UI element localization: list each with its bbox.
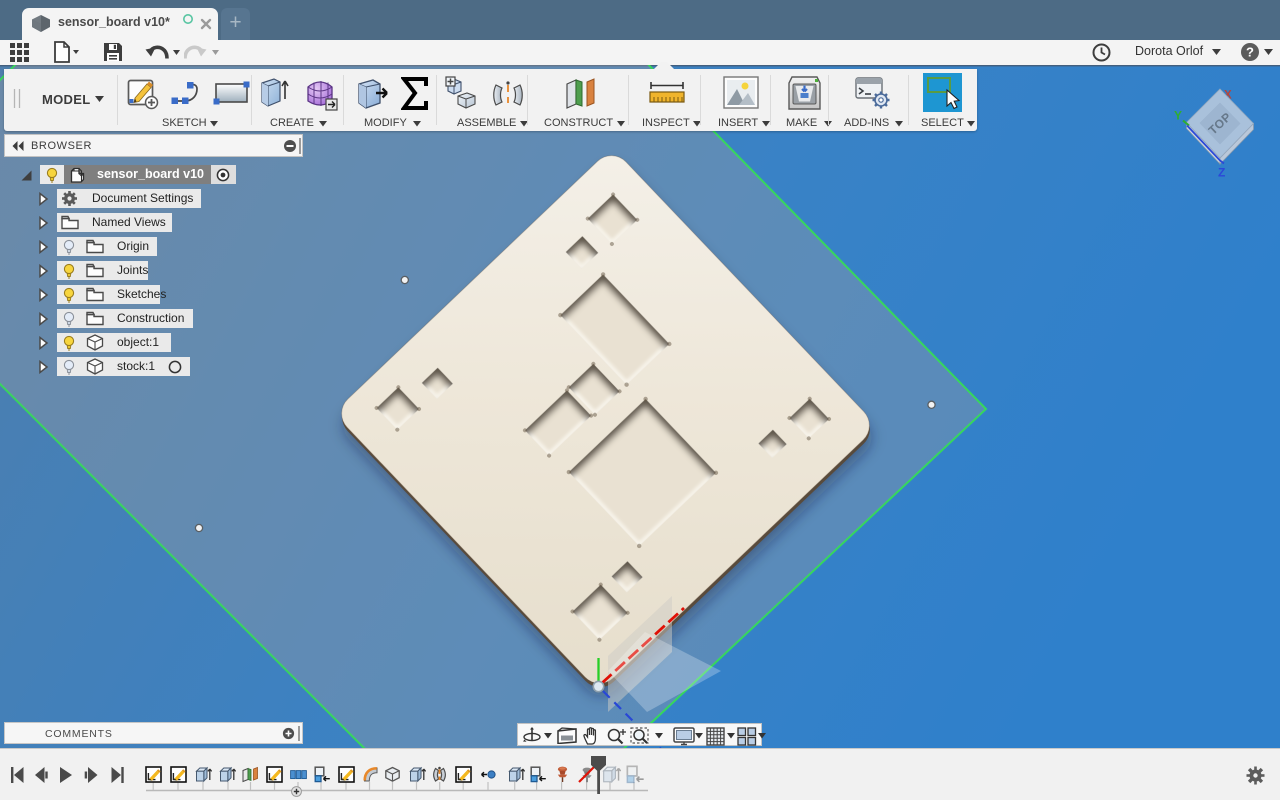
svg-text:?: ?: [1246, 45, 1254, 60]
svg-text:Z: Z: [1218, 166, 1225, 180]
svg-text:Y: Y: [1174, 109, 1182, 123]
